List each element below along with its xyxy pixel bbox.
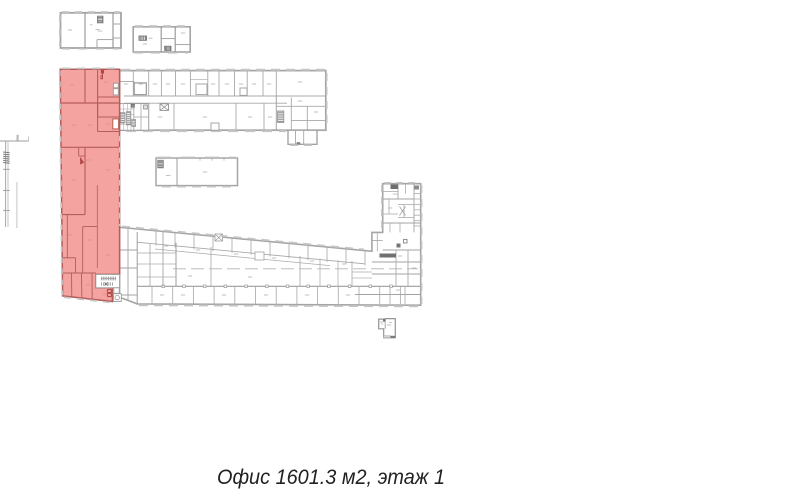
svg-text:Офис 1601.3 м2, этаж 1: Офис 1601.3 м2, этаж 1	[217, 465, 445, 489]
